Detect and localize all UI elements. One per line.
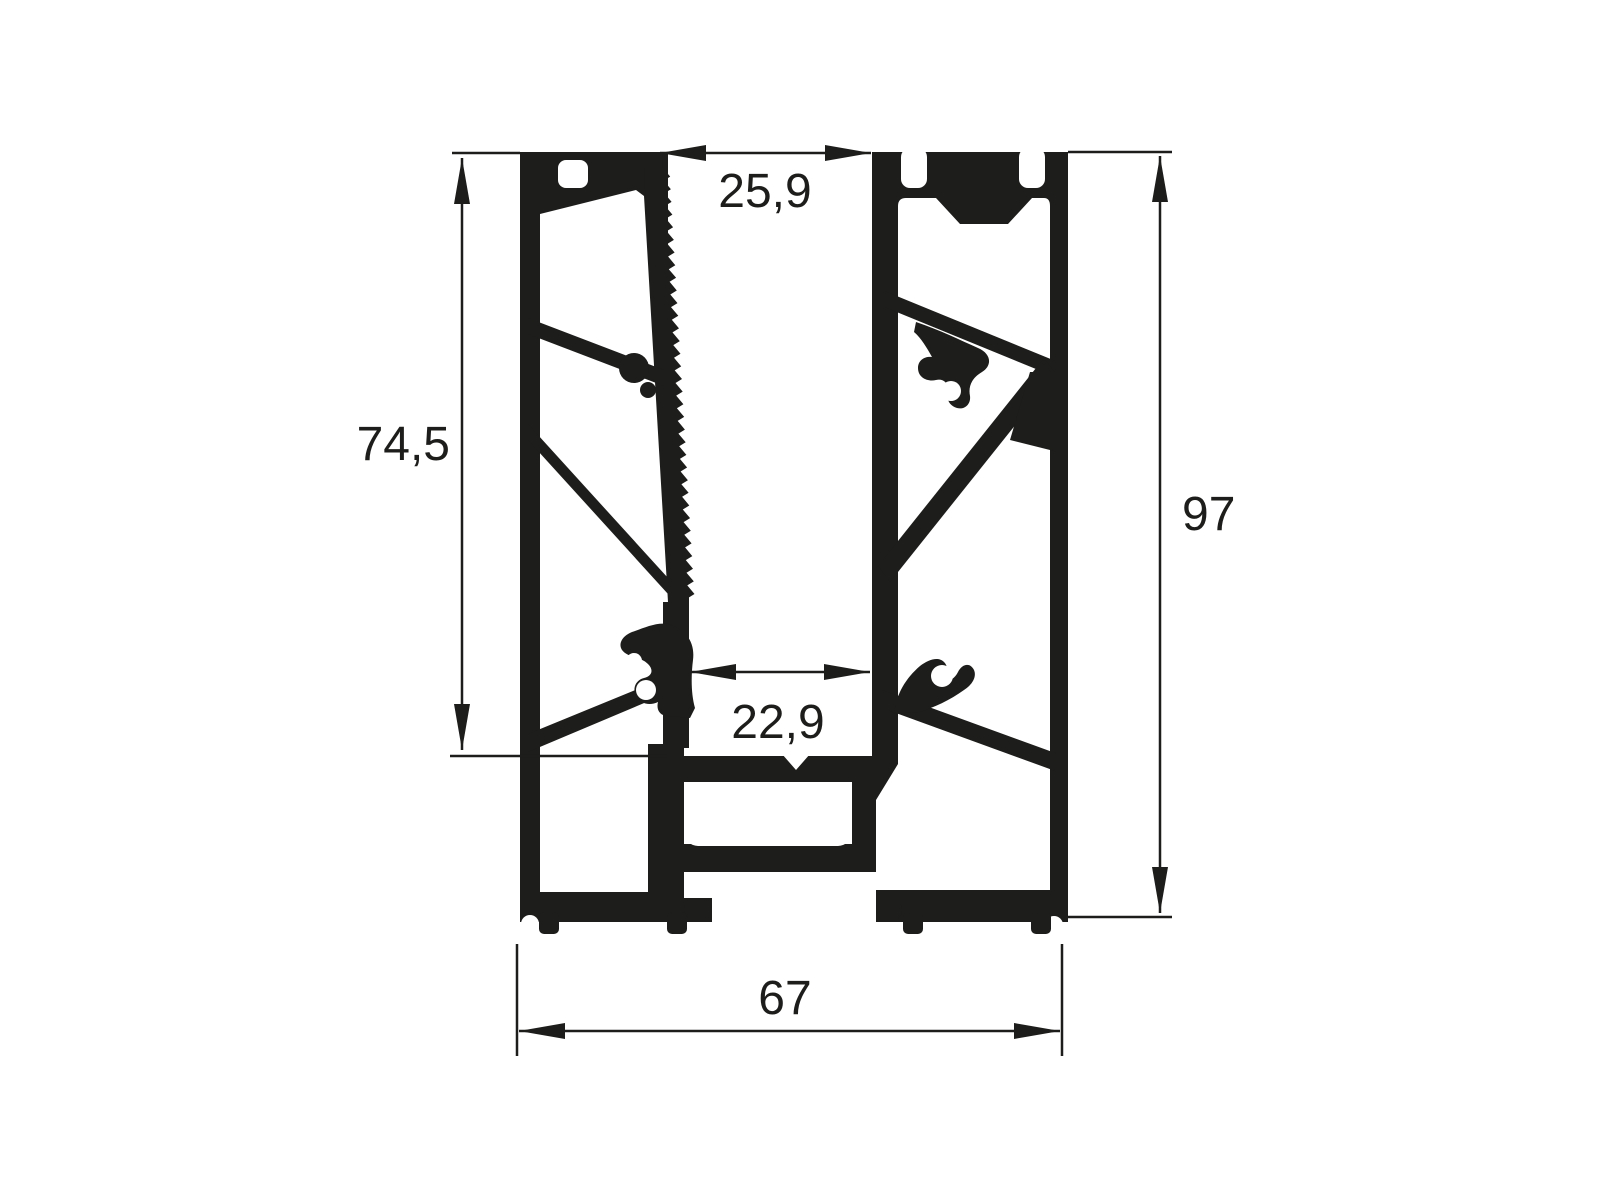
- bottom-center-gap: [712, 872, 876, 940]
- right-flange-tab: [876, 902, 902, 918]
- dimension-right-height: [1068, 152, 1172, 917]
- gripper-notch: [941, 381, 961, 401]
- gripper-notch: [931, 665, 953, 687]
- foot: [667, 912, 687, 934]
- right-cap-notch-right: [1019, 148, 1045, 188]
- gripper-notch: [626, 653, 642, 669]
- drawing-canvas: 25,9 74,5 97 22,9 67: [0, 0, 1600, 1200]
- center-box-cavity: [684, 790, 852, 846]
- dimension-label-left-height: 74,5: [357, 418, 450, 471]
- left-cap-notch: [558, 160, 588, 188]
- dimension-label-right-height: 97: [1182, 488, 1235, 541]
- foot: [1031, 912, 1051, 934]
- dimension-label-top-width: 25,9: [718, 165, 811, 218]
- left-web-boss: [619, 353, 649, 383]
- left-flange-tab: [684, 900, 712, 918]
- technical-drawing-svg: 25,9 74,5 97 22,9 67: [0, 0, 1600, 1200]
- left-bottom-corner-notch: [521, 915, 539, 933]
- dimension-label-bottom-width: 67: [758, 972, 811, 1025]
- profile-cavities: [521, 148, 1063, 940]
- foot: [539, 912, 559, 934]
- left-web-boss-stem: [640, 382, 656, 398]
- dimension-label-inner-width: 22,9: [731, 696, 824, 749]
- foot: [903, 912, 923, 934]
- right-cap-notch-left: [901, 148, 927, 188]
- gripper-notch: [636, 680, 656, 700]
- profile-cross-section: [520, 148, 1068, 940]
